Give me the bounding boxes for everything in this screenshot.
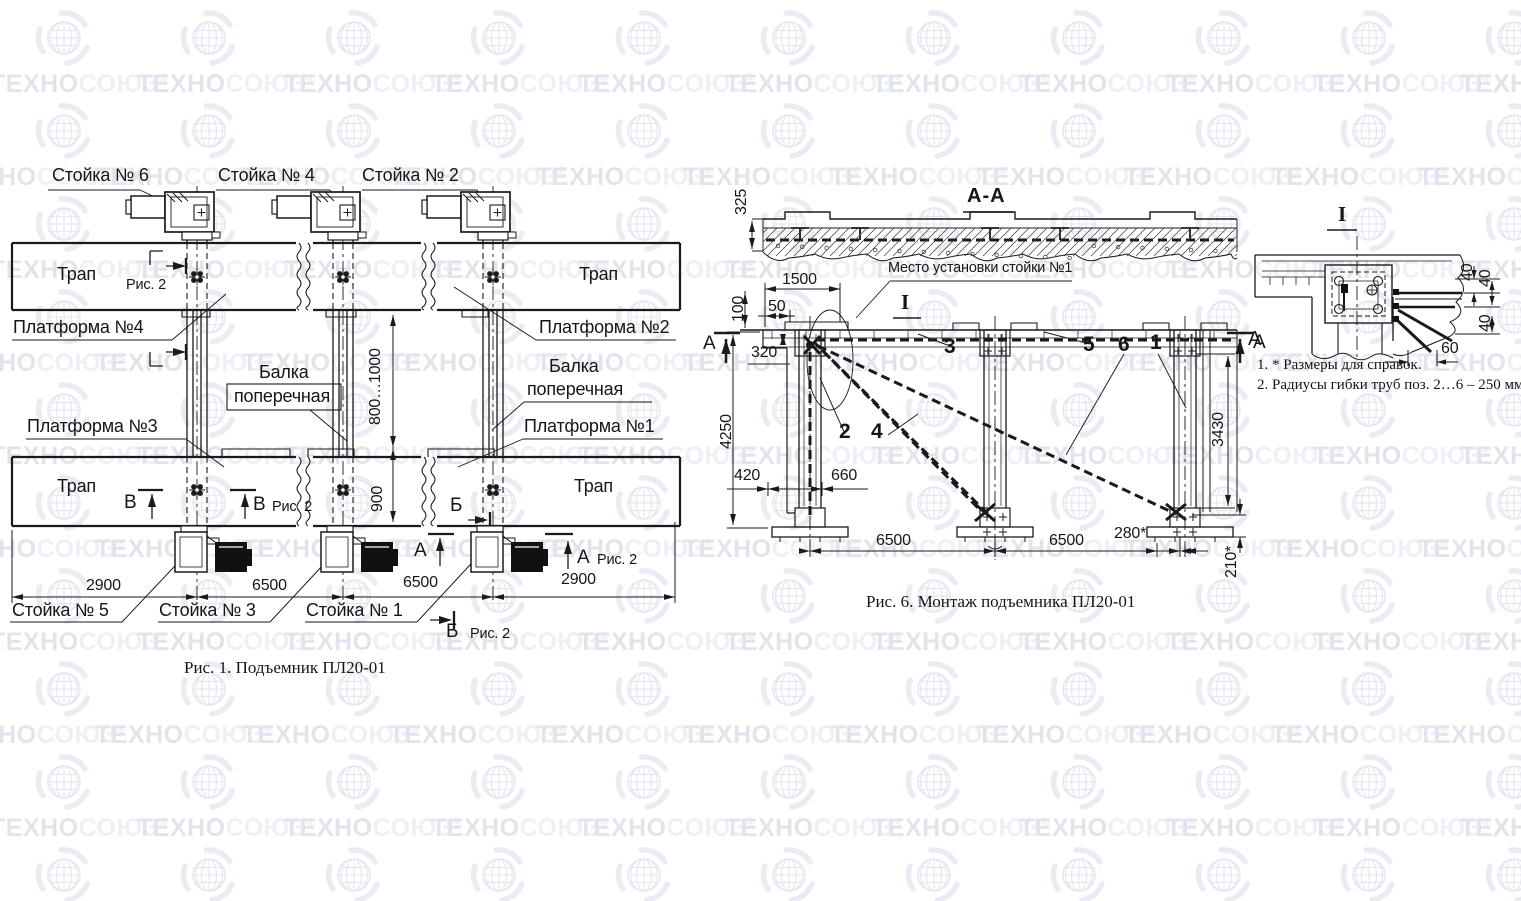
drawing-linework [0,0,1521,901]
fig6-right-wall [1203,330,1237,512]
fig1-trap-bands [12,243,680,526]
detail-column-lines [1338,323,1382,354]
detail-corner-view-drawing [1255,230,1500,366]
fig1-beam-label-box [227,384,341,410]
fig6-section-top-edge [763,212,1237,219]
detail-rails-bold [1395,293,1462,307]
detail-dimension-lines [1385,266,1500,366]
scanned-drawing-page: ТЕХНОСОЮЗ®ТЕХНОСОЮЗ®ТЕХНОСОЮЗ®ТЕХНОСОЮЗ®… [0,0,1521,901]
fig1-generated-details [12,192,675,624]
detail-diagonal-braces [1398,310,1452,352]
detail-outline [1255,255,1460,354]
fig1-lift-layout-drawing [10,186,680,629]
detail-pin [1341,284,1348,293]
fig6-centerlines [810,316,1185,560]
detail-base-plate [1325,265,1392,323]
fig6-assembly-drawing [714,212,1253,560]
fig6-surface-pads [785,322,1227,330]
fig6-part-leaders [820,332,1186,455]
fig6-dim325-line [752,219,763,251]
fig1-section-markers [150,251,568,620]
fig6-cables [810,340,1233,520]
fig6-callout-leader [856,281,1072,318]
